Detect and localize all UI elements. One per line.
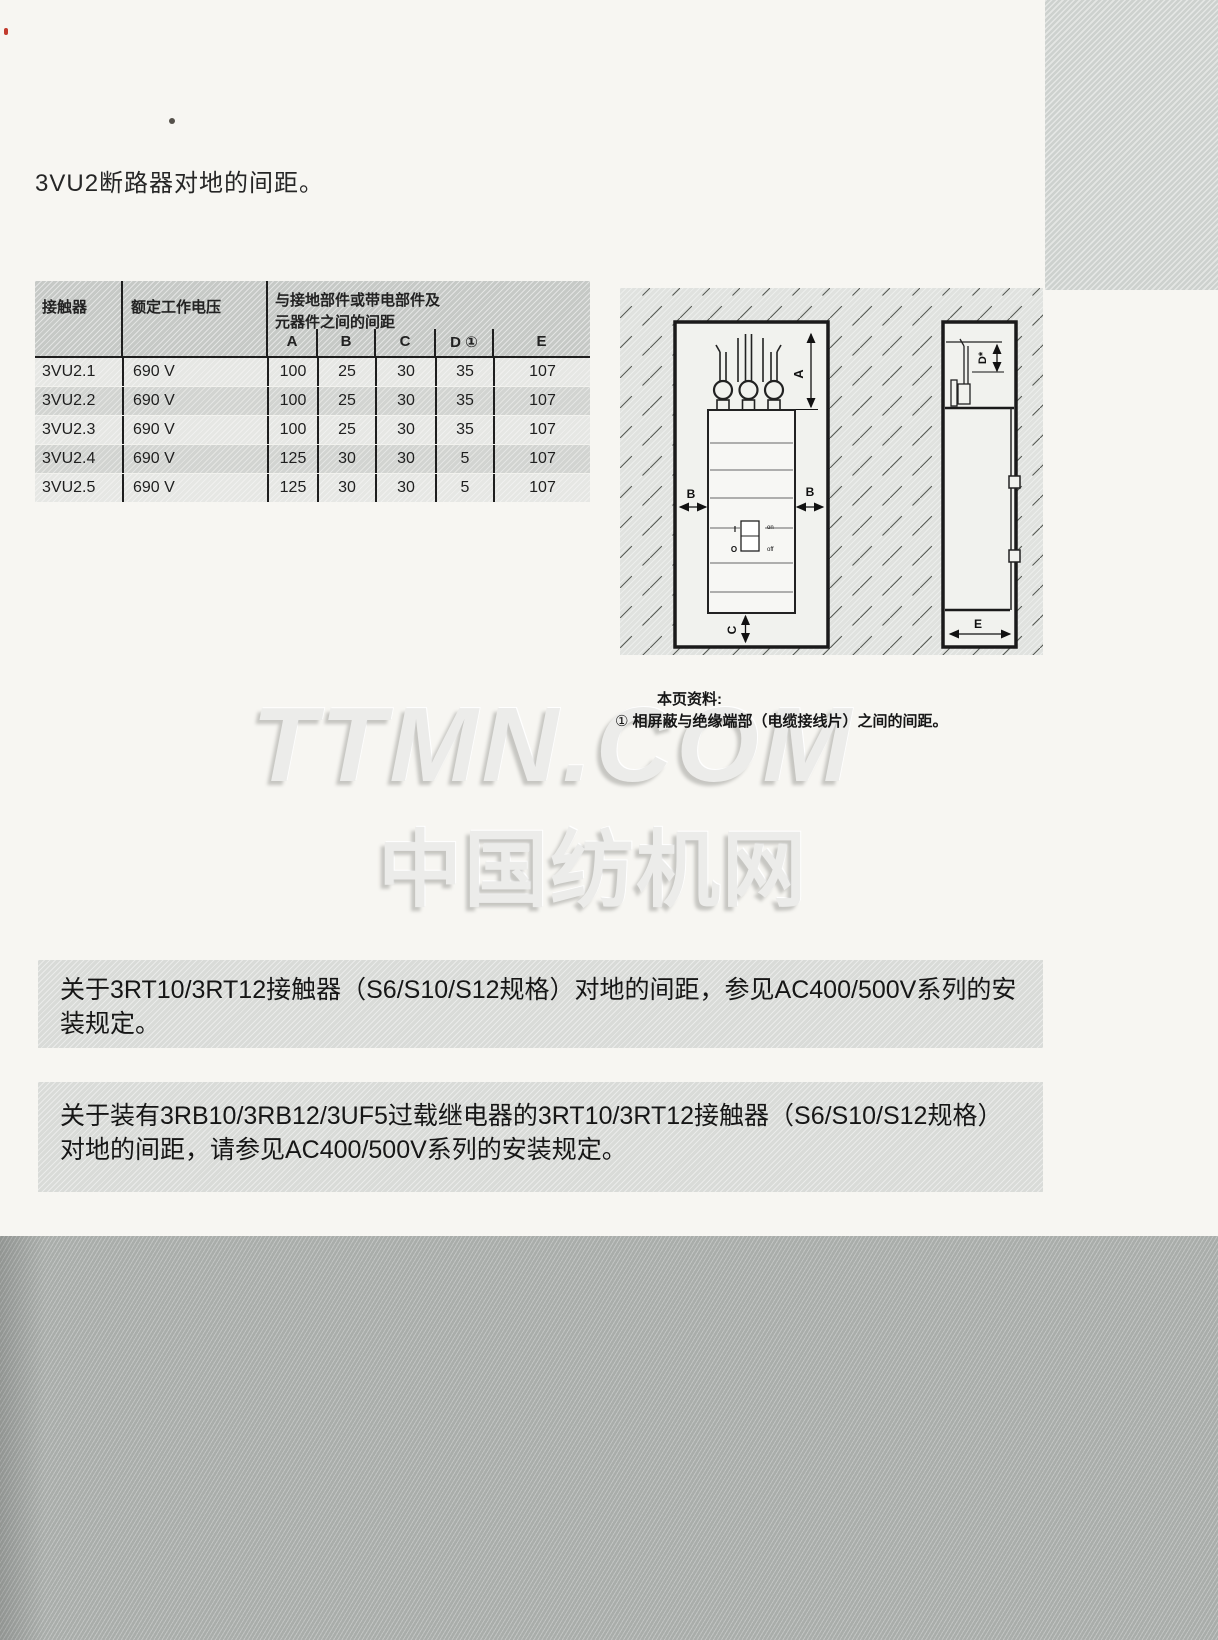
header-dim-c: C — [375, 333, 435, 350]
table-cell: 30 — [317, 445, 375, 473]
table-cell: 690 V — [122, 358, 267, 386]
table-cell: 25 — [317, 358, 375, 386]
table-cell: 100 — [267, 387, 317, 415]
clearance-diagram: I O on off A B B — [620, 288, 1043, 655]
table-cell: 690 V — [122, 445, 267, 473]
header-dim-b: B — [317, 333, 375, 350]
scan-speck-red — [4, 28, 8, 35]
table-cell: 25 — [317, 387, 375, 415]
table-cell: 107 — [493, 387, 590, 415]
table-cell: 107 — [493, 358, 590, 386]
table-row: 3VU2.1690 V100253035107 — [35, 358, 590, 386]
table-cell: 30 — [375, 416, 435, 444]
scanned-catalog-page: 3VU2断路器对地的间距。 TTMN.COM 中国纺机网 接触器 额定工作电压 … — [0, 0, 1218, 1640]
watermark-line2: 中国纺机网 — [378, 828, 808, 912]
table-cell: 3VU2.1 — [35, 358, 122, 386]
scan-speck-dark — [169, 118, 175, 124]
table-cell: 107 — [493, 416, 590, 444]
clearance-table: 接触器 额定工作电压 与接地部件或带电部件及 元器件之间的间距 A B C D … — [35, 281, 590, 502]
footnote-line: ①相屏蔽与绝缘端部（电缆接线片）之间的间距。 — [615, 710, 947, 731]
header-group-line2: 元器件之间的间距 — [275, 311, 395, 332]
header-dim-e: E — [493, 333, 590, 350]
table-cell: 107 — [493, 474, 590, 502]
switch-i-label: I — [734, 525, 736, 534]
table-cell: 30 — [375, 445, 435, 473]
table-cell: 3VU2.5 — [35, 474, 122, 502]
table-cell: 690 V — [122, 416, 267, 444]
table-row: 3VU2.2690 V100253035107 — [35, 386, 590, 415]
dim-c-label: C — [725, 625, 739, 634]
switch-on-label: on — [767, 525, 774, 531]
dim-e-label: E — [974, 617, 982, 631]
dim-b-right-label: B — [806, 485, 815, 499]
switch-o-label: O — [731, 545, 737, 554]
table-cell: 3VU2.4 — [35, 445, 122, 473]
header-contactor: 接触器 — [42, 296, 87, 317]
table-cell: 35 — [435, 416, 493, 444]
dim-d-label: D* — [977, 351, 989, 364]
footnote-marker: ① — [615, 713, 628, 730]
dim-a-label: A — [791, 369, 806, 379]
header-dim-d: D ① — [435, 333, 493, 351]
table-cell: 3VU2.2 — [35, 387, 122, 415]
note-box-1: 关于3RT10/3RT12接触器（S6/S10/S12规格）对地的间距，参见AC… — [38, 960, 1043, 1048]
table-cell: 690 V — [122, 474, 267, 502]
table-row: 3VU2.3690 V100253035107 — [35, 415, 590, 444]
front-view: I O on off A B B — [675, 322, 828, 647]
side-view: D* E — [943, 322, 1020, 647]
table-cell: 25 — [317, 416, 375, 444]
watermark-line1: TTMN.COM — [252, 692, 855, 798]
clearance-diagram-panel: I O on off A B B — [620, 288, 1043, 655]
table-cell: 125 — [267, 445, 317, 473]
breaker-body — [708, 410, 795, 613]
table-header: 接触器 额定工作电压 与接地部件或带电部件及 元器件之间的间距 A B C D … — [35, 281, 590, 358]
table-cell: 30 — [317, 474, 375, 502]
table-cell: 5 — [435, 474, 493, 502]
header-dim-a: A — [267, 333, 317, 350]
table-cell: 100 — [267, 416, 317, 444]
table-cell: 30 — [375, 474, 435, 502]
table-cell: 107 — [493, 445, 590, 473]
switch-off-label: off — [767, 547, 774, 553]
corner-gray-block — [1045, 0, 1218, 290]
table-row: 3VU2.4690 V12530305107 — [35, 444, 590, 473]
table-cell: 35 — [435, 358, 493, 386]
header-group-line1: 与接地部件或带电部件及 — [275, 289, 440, 310]
table-cell: 125 — [267, 474, 317, 502]
table-cell: 30 — [375, 387, 435, 415]
bottom-gray-band — [0, 1236, 1218, 1640]
table-cell: 100 — [267, 358, 317, 386]
table-body: 3VU2.1690 V1002530351073VU2.2690 V100253… — [35, 358, 590, 502]
table-row: 3VU2.5690 V12530305107 — [35, 473, 590, 502]
header-voltage: 额定工作电压 — [131, 296, 221, 317]
table-cell: 3VU2.3 — [35, 416, 122, 444]
table-cell: 690 V — [122, 387, 267, 415]
page-title: 3VU2断路器对地的间距。 — [35, 163, 324, 198]
table-cell: 30 — [375, 358, 435, 386]
table-cell: 5 — [435, 445, 493, 473]
footnote-heading: 本页资料: — [657, 688, 722, 709]
dim-b-left-label: B — [687, 487, 696, 501]
table-cell: 35 — [435, 387, 493, 415]
note-box-2: 关于装有3RB10/3RB12/3UF5过载继电器的3RT10/3RT12接触器… — [38, 1082, 1043, 1192]
footnote-text: 相屏蔽与绝缘端部（电缆接线片）之间的间距。 — [632, 713, 947, 730]
